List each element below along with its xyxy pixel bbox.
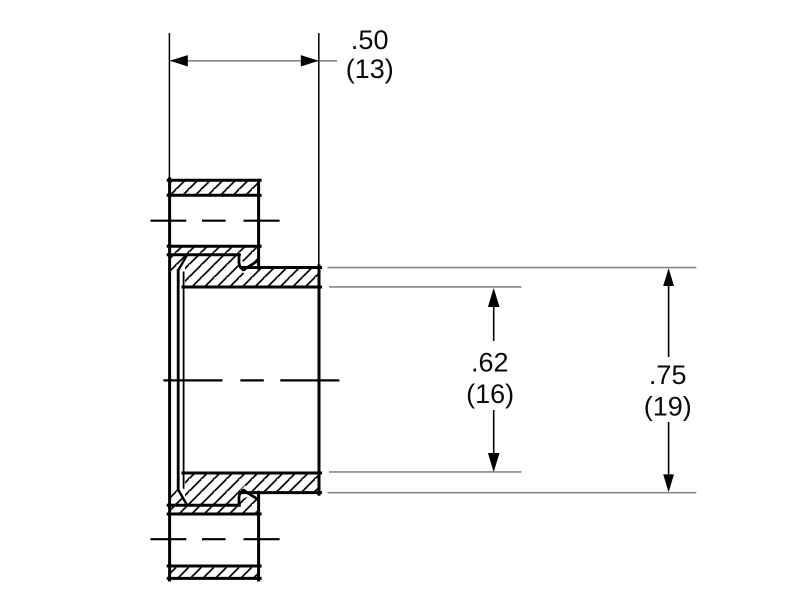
svg-text:.75: .75 <box>649 360 687 390</box>
svg-text:.62: .62 <box>471 348 509 378</box>
svg-text:(13): (13) <box>346 54 394 84</box>
svg-text:(19): (19) <box>644 392 692 422</box>
svg-text:(16): (16) <box>466 379 514 409</box>
svg-text:.50: .50 <box>351 25 389 55</box>
